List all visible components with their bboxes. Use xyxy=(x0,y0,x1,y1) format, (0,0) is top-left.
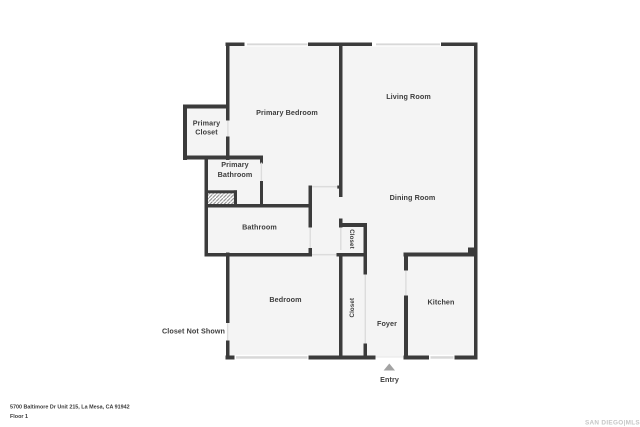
svg-text:Closet: Closet xyxy=(348,229,355,249)
svg-text:Closet: Closet xyxy=(349,298,356,318)
svg-text:Closet: Closet xyxy=(195,128,218,137)
svg-text:Closet Not Shown: Closet Not Shown xyxy=(162,326,225,335)
svg-text:Living Room: Living Room xyxy=(386,92,431,101)
svg-text:SAN DIEGO|MLS: SAN DIEGO|MLS xyxy=(585,419,640,426)
svg-text:Bathroom: Bathroom xyxy=(218,170,253,179)
svg-text:5700 Baltimore Dr Unit 215, La: 5700 Baltimore Dr Unit 215, La Mesa, CA … xyxy=(10,405,130,411)
svg-text:Foyer: Foyer xyxy=(377,319,397,328)
svg-text:Bathroom: Bathroom xyxy=(242,223,277,232)
svg-text:Primary Bedroom: Primary Bedroom xyxy=(256,108,318,117)
svg-text:Bedroom: Bedroom xyxy=(269,295,301,304)
svg-text:Entry: Entry xyxy=(380,375,399,384)
svg-text:Kitchen: Kitchen xyxy=(427,298,454,307)
svg-text:Primary: Primary xyxy=(221,160,248,169)
svg-text:Primary: Primary xyxy=(193,119,220,128)
svg-text:Floor 1: Floor 1 xyxy=(10,414,28,420)
svg-text:Dining Room: Dining Room xyxy=(390,193,436,202)
